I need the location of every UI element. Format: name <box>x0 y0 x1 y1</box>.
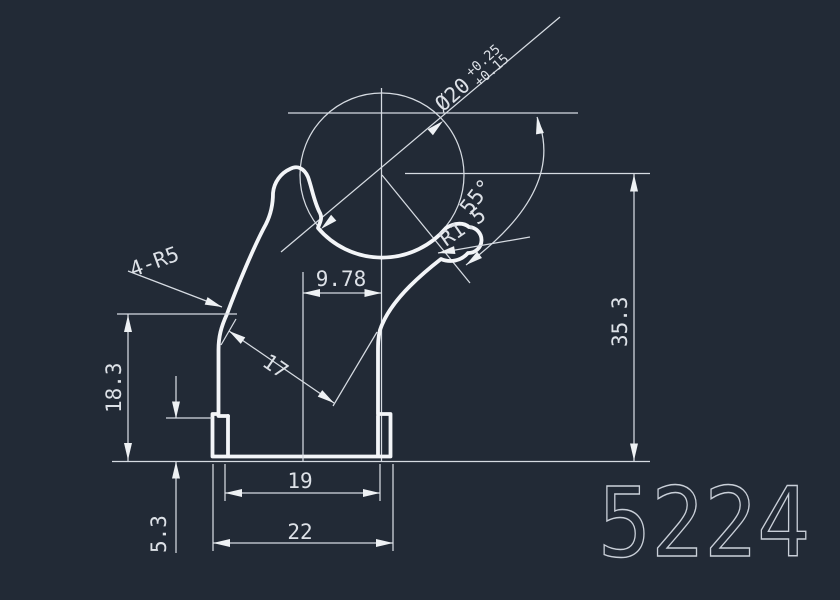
arrow <box>630 175 638 192</box>
outer-width-label: 22 <box>287 520 312 544</box>
arrow <box>376 539 393 547</box>
profile-outline <box>213 167 482 456</box>
diameter-label: Ø20 <box>430 73 474 116</box>
arrow <box>213 539 230 547</box>
arrow <box>225 489 242 497</box>
cad-drawing-svg: Ø20 +0.25 +0.15 55° R1.5 4-R5 9.78 17 18… <box>0 0 840 600</box>
dimension-labels: Ø20 +0.25 +0.15 55° R1.5 4-R5 9.78 17 18… <box>102 41 632 553</box>
arrow <box>172 462 180 479</box>
base-height-label: 5.3 <box>147 515 171 553</box>
arrow <box>172 402 180 419</box>
arrow <box>124 315 132 332</box>
arrow <box>124 443 132 460</box>
arrow <box>363 489 380 497</box>
right-height-label: 35.3 <box>608 296 632 347</box>
dimension-lines <box>117 117 634 553</box>
arrow <box>630 444 638 461</box>
arrow <box>365 289 382 297</box>
diameter-label-group: Ø20 +0.25 +0.15 <box>430 41 513 119</box>
inner-width-label: 19 <box>287 469 312 493</box>
arrow <box>318 390 337 406</box>
part-number: 5224 <box>598 467 810 579</box>
arrow <box>205 297 224 311</box>
construction-lines <box>112 17 650 462</box>
profile <box>213 167 482 456</box>
left-height-label: 18.3 <box>102 362 126 413</box>
ext-17-right <box>333 332 377 406</box>
fillet-label: 4-R5 <box>127 242 183 282</box>
center-offset-label: 9.78 <box>316 267 367 291</box>
cad-canvas: Ø20 +0.25 +0.15 55° R1.5 4-R5 9.78 17 18… <box>0 0 840 600</box>
